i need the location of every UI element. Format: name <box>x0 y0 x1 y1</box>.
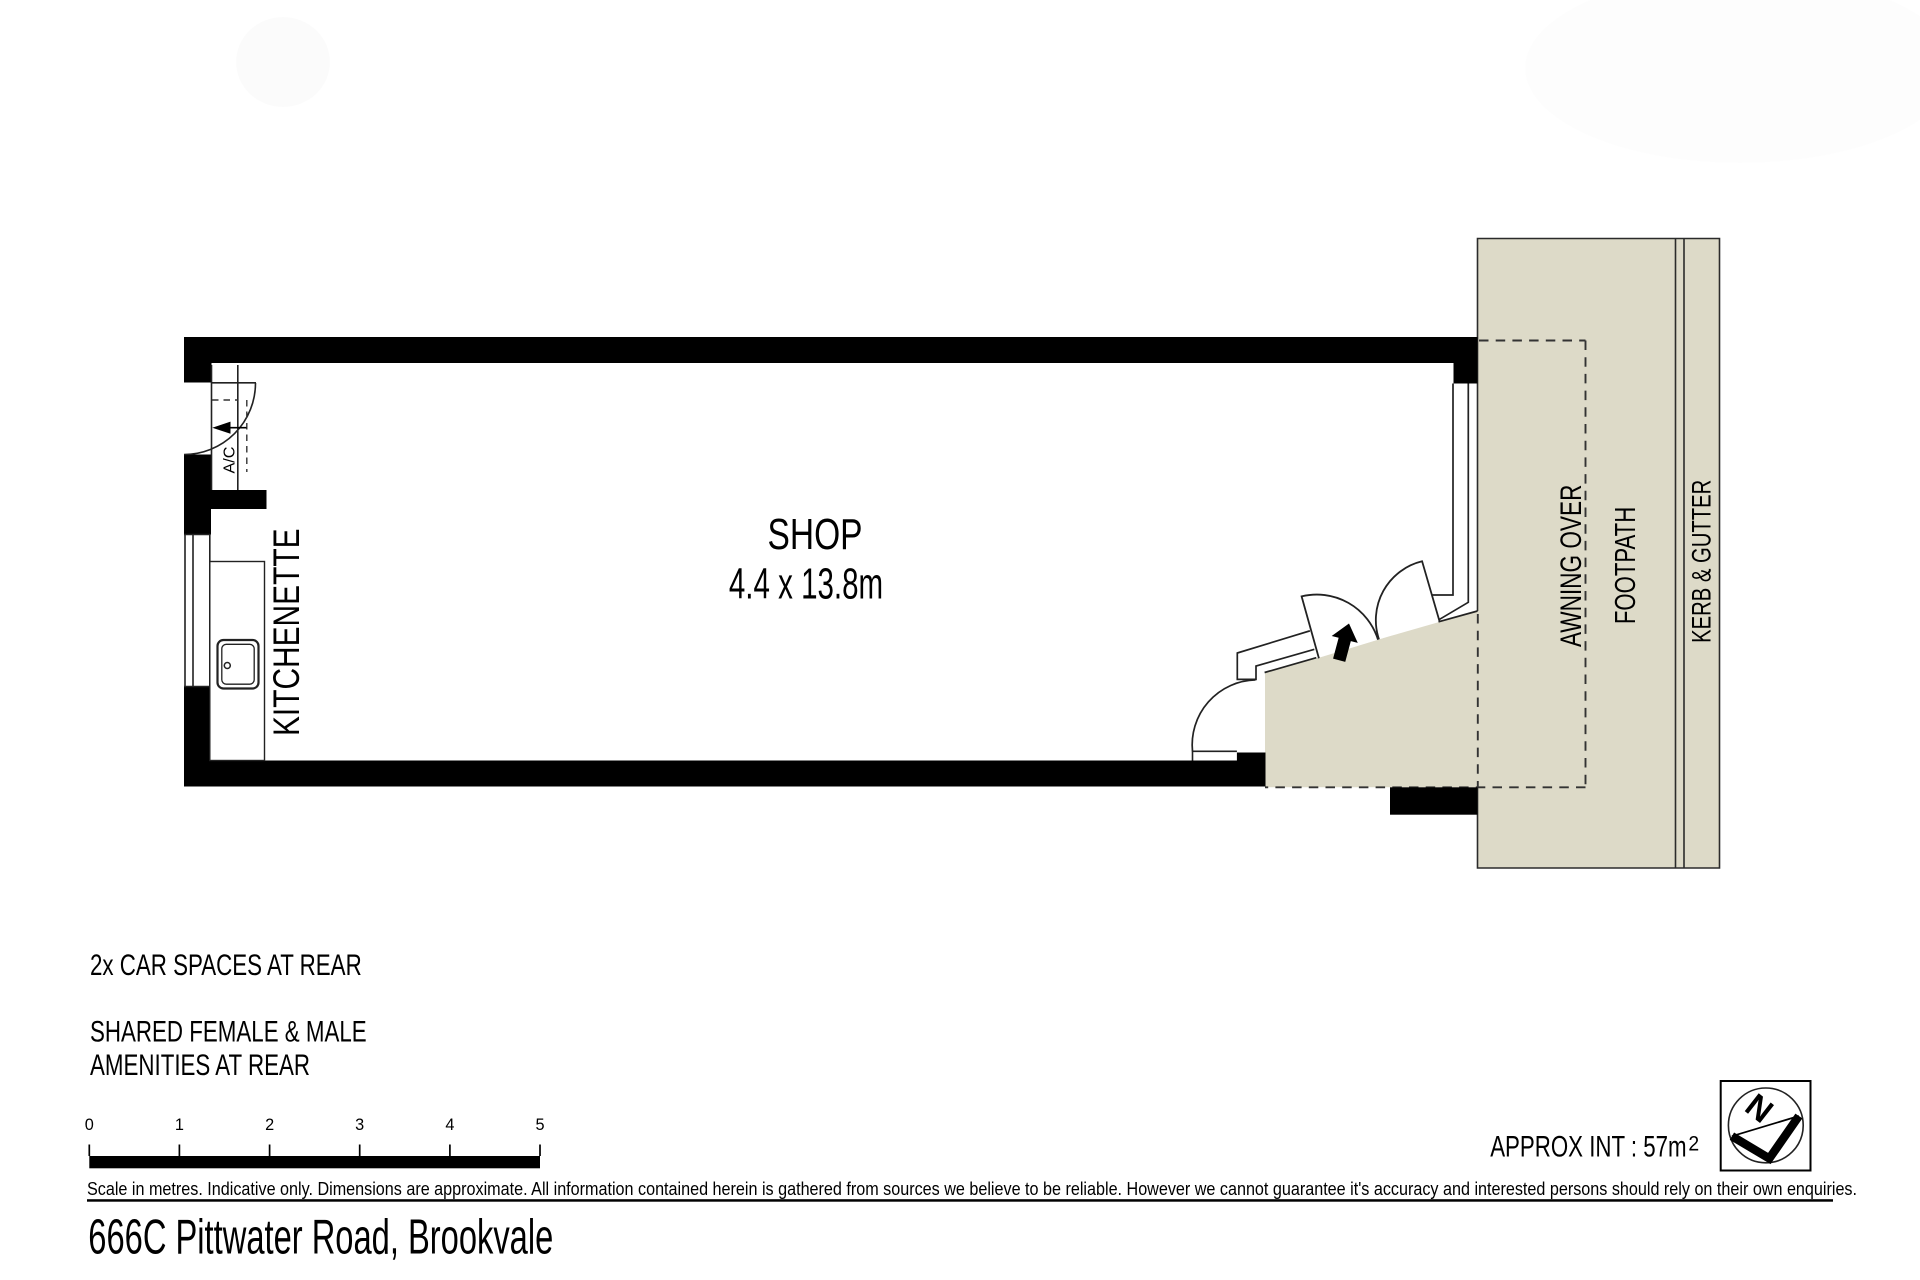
svg-text:APPROX INT : 57m: APPROX INT : 57m <box>1490 1131 1686 1164</box>
svg-text:3: 3 <box>355 1116 364 1134</box>
svg-text:SHOP: SHOP <box>768 510 863 559</box>
svg-text:5: 5 <box>535 1116 544 1134</box>
svg-text:SHARED FEMALE & MALE: SHARED FEMALE & MALE <box>90 1016 367 1049</box>
svg-text:0: 0 <box>85 1116 94 1134</box>
svg-text:1: 1 <box>175 1116 184 1134</box>
svg-text:AWNING OVER: AWNING OVER <box>1555 485 1588 647</box>
svg-text:4.4 x 13.8m: 4.4 x 13.8m <box>729 560 883 609</box>
svg-text:A/C: A/C <box>222 447 239 474</box>
svg-text:4: 4 <box>445 1116 454 1134</box>
svg-text:Scale in metres. Indicative on: Scale in metres. Indicative only. Dimens… <box>87 1179 1857 1199</box>
svg-text:2: 2 <box>1688 1133 1699 1156</box>
svg-text:KERB & GUTTER: KERB & GUTTER <box>1687 480 1717 643</box>
svg-text:2: 2 <box>265 1116 274 1134</box>
svg-text:666C Pittwater Road, Brookvale: 666C Pittwater Road, Brookvale <box>88 1210 553 1264</box>
svg-text:AMENITIES AT REAR: AMENITIES AT REAR <box>90 1049 310 1082</box>
svg-text:2x CAR SPACES AT REAR: 2x CAR SPACES AT REAR <box>90 949 362 982</box>
svg-text:FOOTPATH: FOOTPATH <box>1610 507 1642 624</box>
svg-text:KITCHENETTE: KITCHENETTE <box>266 529 307 737</box>
